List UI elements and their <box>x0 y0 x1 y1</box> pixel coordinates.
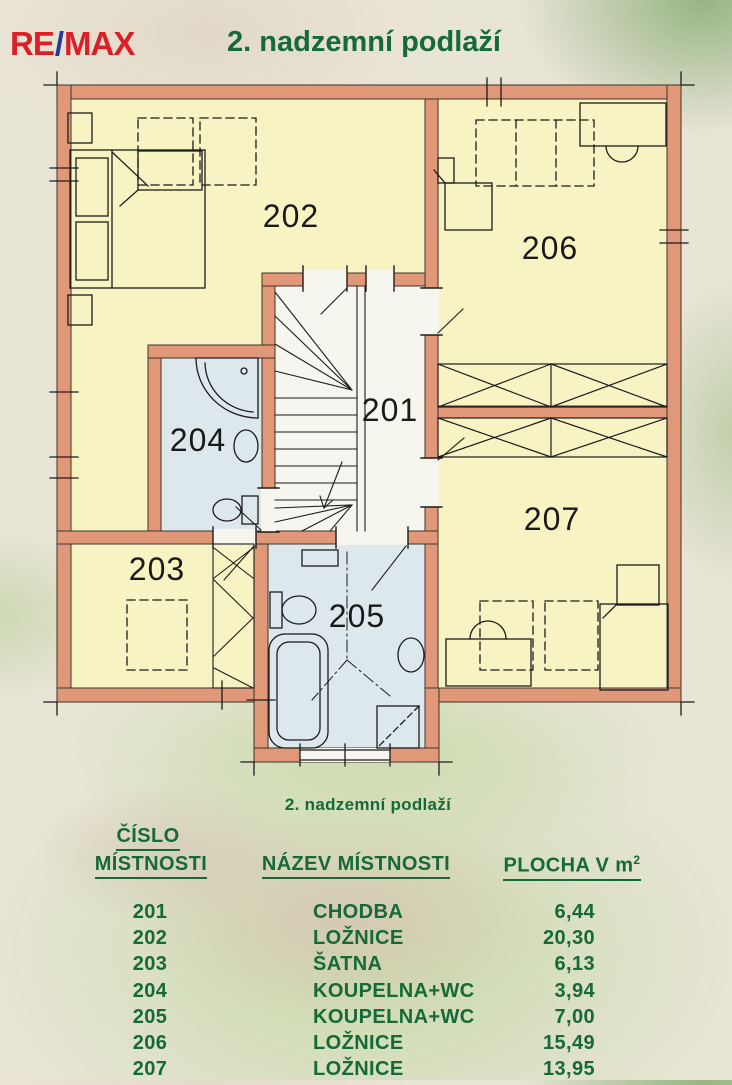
room-area-cell: 3,94 <box>450 980 595 1003</box>
room-number-cell: 205 <box>70 1006 230 1029</box>
table-row: 202LOŽNICE20,30 <box>0 927 732 954</box>
table-caption: 2. nadzemní podlaží <box>168 795 568 815</box>
room-area-cell: 13,95 <box>450 1058 595 1081</box>
room-area-cell: 7,00 <box>450 1006 595 1029</box>
col-header-area: PLOCHA V m2 <box>472 853 672 881</box>
col-header-number-line1: ČÍSLO <box>68 825 228 851</box>
room-number-cell: 201 <box>70 901 230 924</box>
table-row: 201CHODBA6,44 <box>0 901 732 928</box>
squared-sup: 2 <box>633 853 640 867</box>
room-name-cell: CHODBA <box>313 901 403 924</box>
room-name-cell: LOŽNICE <box>313 1058 404 1081</box>
room-name-cell: LOŽNICE <box>313 927 404 950</box>
table-row: 206LOŽNICE15,49 <box>0 1032 732 1059</box>
room-number-cell: 207 <box>70 1058 230 1081</box>
room-number-cell: 204 <box>70 980 230 1003</box>
room-name-cell: LOŽNICE <box>313 1032 404 1055</box>
room-table: 2. nadzemní podlaží ČÍSLO MÍSTNOSTI NÁZE… <box>0 0 732 1080</box>
table-row: 205KOUPELNA+WC7,00 <box>0 1006 732 1033</box>
room-number-cell: 203 <box>70 953 230 976</box>
room-number-cell: 202 <box>70 927 230 950</box>
room-area-cell: 20,30 <box>450 927 595 950</box>
table-row: 203ŠATNA6,13 <box>0 953 732 980</box>
room-number-cell: 206 <box>70 1032 230 1055</box>
room-area-cell: 6,13 <box>450 953 595 976</box>
room-name-cell: ŠATNA <box>313 953 382 976</box>
col-header-name: NÁZEV MÍSTNOSTI <box>236 853 476 879</box>
table-row: 207LOŽNICE13,95 <box>0 1058 732 1085</box>
table-row: 204KOUPELNA+WC3,94 <box>0 980 732 1007</box>
col-header-number-line2: MÍSTNOSTI <box>71 853 231 879</box>
room-area-cell: 6,44 <box>450 901 595 924</box>
room-area-cell: 15,49 <box>450 1032 595 1055</box>
